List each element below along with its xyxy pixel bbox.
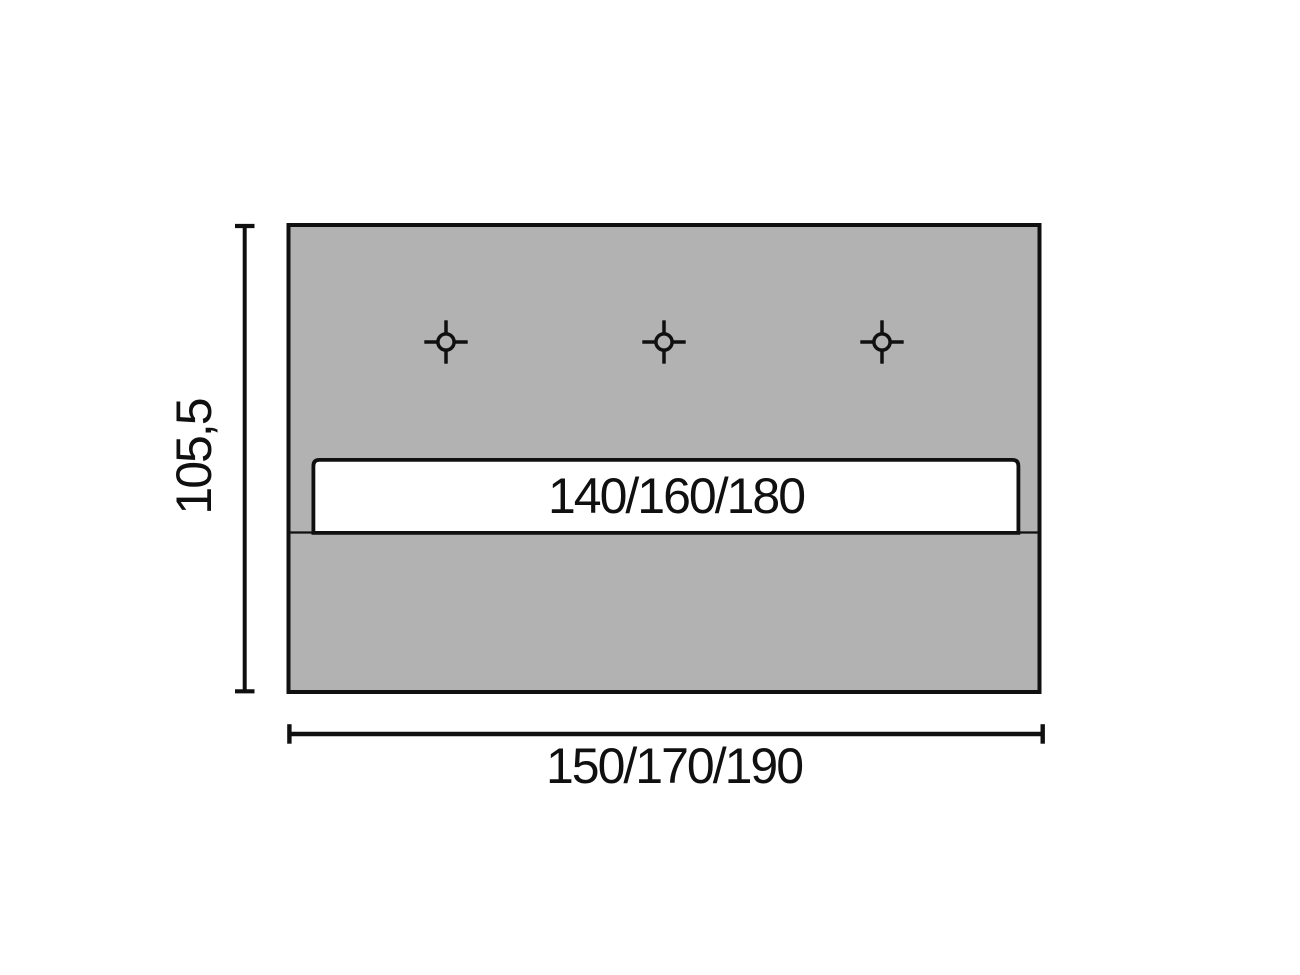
svg-text:105,5: 105,5 xyxy=(166,399,222,514)
svg-text:150/170/190: 150/170/190 xyxy=(546,738,802,794)
svg-text:140/160/180: 140/160/180 xyxy=(548,468,804,524)
